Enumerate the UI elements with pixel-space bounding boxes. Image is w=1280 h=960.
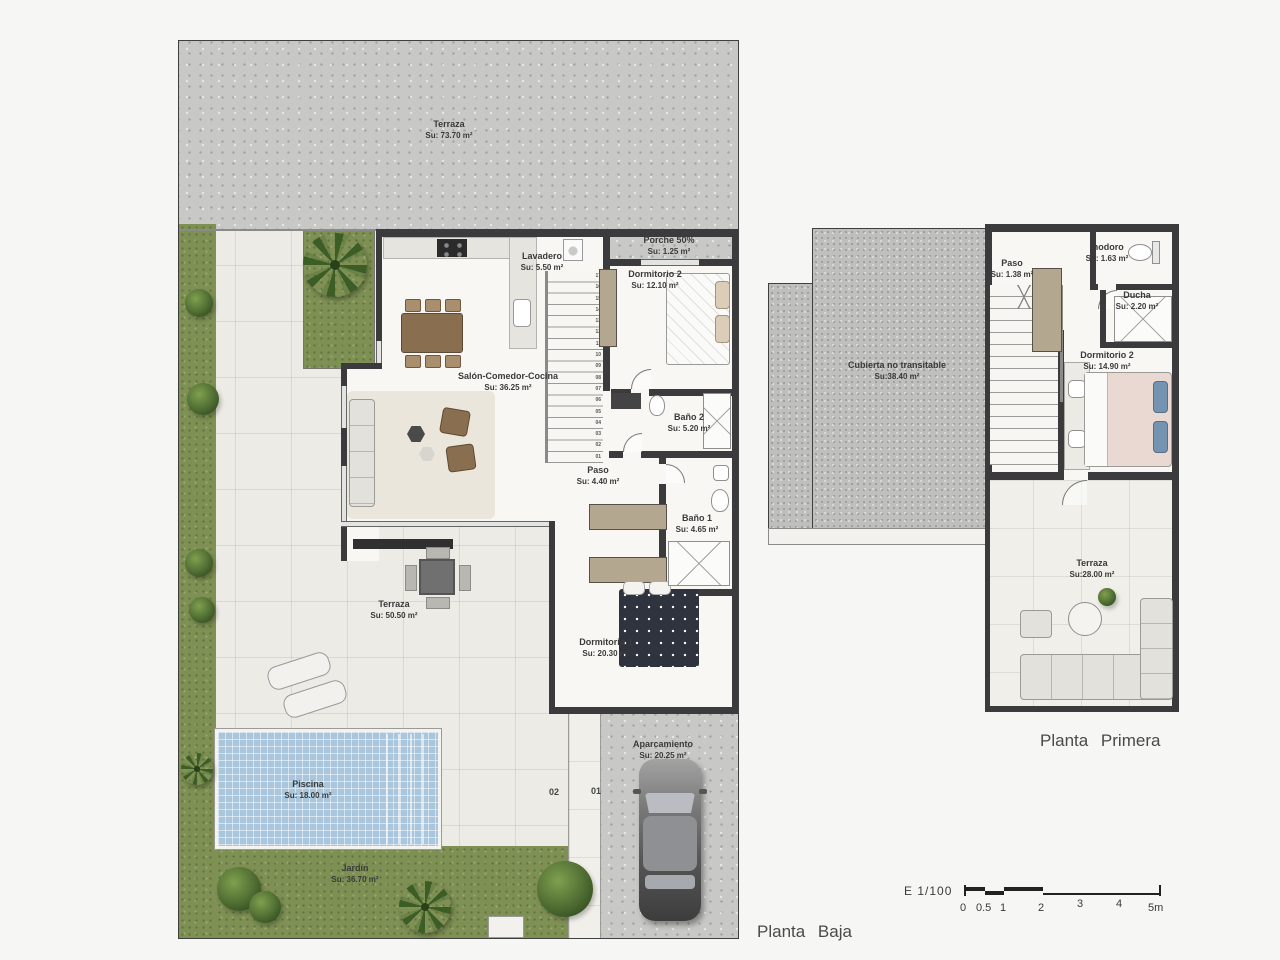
palm-tree-icon [303, 233, 367, 297]
roof-surface [768, 283, 813, 545]
garden-gate [488, 916, 524, 938]
outdoor-table [1068, 602, 1102, 636]
window-wall [341, 521, 555, 527]
terrace-edge-line [179, 229, 376, 231]
room-label-terraza-top: TerrazaSu: 73.70 m² [369, 119, 529, 141]
wall [985, 472, 1062, 480]
pillow [1153, 421, 1168, 453]
room-label-piscina: PiscinaSu: 18.00 m² [258, 779, 358, 801]
car-windshield [645, 793, 695, 813]
room-label-terraza-upper: TerrazaSu:28.00 m² [1022, 558, 1162, 580]
room-label-paso: PasoSu: 4.40 m² [548, 465, 648, 487]
room-label-bano2: Baño 2Su: 5.20 m² [639, 412, 739, 434]
terrace-parapet [985, 706, 1179, 712]
planta-primera-plan: Cubierta no transitableSu:38.40 m² PasoS… [762, 222, 1179, 738]
bush-icon [187, 383, 219, 415]
scale-segment [965, 887, 985, 891]
scale-tick: 4 [1116, 898, 1122, 910]
window [376, 341, 382, 363]
cooktop [437, 239, 467, 257]
car [639, 759, 701, 921]
scale-bar: E 1/100 0 0.5 1 2 3 4 5m [898, 878, 1180, 922]
planta-baja-plan: 1716151413121110090807060504030201 [178, 40, 739, 939]
room-label-aparcamiento: AparcamientoSu: 20.25 m² [613, 739, 713, 761]
wardrobe [589, 557, 667, 583]
outdoor-sofa [1020, 654, 1148, 700]
wall [549, 521, 555, 713]
room-label-salon: Salón-Comedor-CocinaSu: 36.25 m² [446, 371, 570, 393]
wardrobe [1032, 268, 1062, 352]
wall [732, 229, 738, 713]
room-label-terraza-mid: TerrazaSu: 50.50 m² [344, 599, 444, 621]
planta-primera-title: Planta Primera [1040, 731, 1160, 751]
dining-chair [425, 299, 441, 312]
pillow [715, 315, 730, 343]
wall [376, 229, 382, 341]
armchair [439, 407, 471, 437]
car-rear-window [645, 875, 695, 889]
wall [549, 707, 738, 714]
car-mirror [699, 789, 707, 794]
scale-segment [1043, 893, 1160, 895]
pillow [715, 281, 730, 309]
patio-chair [459, 565, 471, 591]
scale-tick: 5m [1148, 902, 1163, 914]
bush-icon [249, 891, 281, 923]
terrace-parapet [985, 480, 990, 712]
dining-chair [445, 299, 461, 312]
tree-icon [537, 861, 593, 917]
room-label-dormitorio1: Dormitorio 1Su: 20.30 m² [556, 637, 656, 659]
wall [1088, 472, 1178, 480]
dining-table [401, 313, 463, 353]
scale-label: E 1/100 [904, 884, 952, 898]
bed-dormitorio2-upper [1084, 372, 1172, 467]
planta-baja-title: Planta Baja [757, 922, 852, 942]
bush-icon [185, 549, 213, 577]
outdoor-sofa [1140, 598, 1173, 700]
scale-segment [1004, 887, 1043, 891]
wall [641, 451, 738, 458]
room-label-cubierta: Cubierta no transitableSu:38.40 m² [837, 360, 957, 382]
wall [609, 451, 623, 458]
room-label-bano1: Baño 1Su: 4.65 m² [647, 513, 747, 535]
patio-chair [405, 565, 417, 591]
bed-sheet-fold [1085, 373, 1108, 466]
room-label-ducha: DuchaSu: 2.20 m² [1092, 290, 1182, 312]
pillow [623, 581, 645, 595]
roof-gutter [768, 528, 988, 545]
pillow [1153, 381, 1168, 413]
room-label-inodoro: InodoroSu: 1.63 m² [1062, 242, 1152, 264]
palm-tree-icon [181, 753, 213, 785]
dining-chair [425, 355, 441, 368]
bush-icon [189, 597, 215, 623]
dining-chair [445, 355, 461, 368]
center-floor [549, 456, 609, 713]
dining-chair [405, 299, 421, 312]
wall [985, 224, 1179, 232]
parking-spot-02: 02 [549, 787, 559, 797]
staircase: 1716151413121110090807060504030201 [548, 271, 603, 463]
room-label-lavadero: LavaderoSu: 5.50 m² [492, 251, 592, 273]
shower-tray [668, 541, 730, 586]
bush-icon [185, 289, 213, 317]
outdoor-armchair [1020, 610, 1052, 638]
floor-plan-sheet: 1716151413121110090807060504030201 [0, 0, 1280, 960]
potted-plant-icon [1098, 588, 1116, 606]
patio-table [419, 559, 455, 595]
armchair [445, 443, 476, 473]
room-label-paso-upper: PasoSu: 1.38 m² [962, 258, 1062, 280]
sofa [349, 399, 375, 507]
dining-chair [405, 355, 421, 368]
room-label-dormitorio2: Dormitorio 2Su: 12.10 m² [605, 269, 705, 291]
scale-tick: 3 [1077, 898, 1083, 910]
wall [1100, 342, 1179, 348]
scale-tick: 2 [1038, 902, 1044, 914]
scale-tick: 0.5 [976, 902, 991, 914]
patio-chair [426, 547, 450, 559]
scale-tick: 0 [960, 902, 966, 914]
car-roof [643, 816, 697, 871]
room-label-jardin: JardínSu: 36.70 m² [305, 863, 405, 885]
pool-steps [386, 734, 434, 844]
window [641, 259, 699, 266]
bathroom-counter [611, 393, 641, 409]
toilet [711, 489, 729, 512]
kitchen-sink [513, 299, 531, 327]
toilet-cistern [1152, 241, 1160, 264]
wall [659, 456, 666, 464]
left-garden-strip [179, 224, 216, 938]
room-label-porche: Porche 50%Su: 1.25 m² [619, 235, 719, 257]
scale-tick: 1 [1000, 902, 1006, 914]
palm-tree-icon [399, 881, 451, 933]
parking-spot-01: 01 [591, 786, 601, 796]
car-mirror [633, 789, 641, 794]
scale-tick-mark [1159, 885, 1161, 896]
room-label-dormitorio2-upper: Dormitorio 2Su: 14.90 m² [1052, 350, 1162, 372]
washbasin [713, 465, 729, 481]
scale-segment [985, 891, 1004, 895]
wall [341, 363, 382, 369]
